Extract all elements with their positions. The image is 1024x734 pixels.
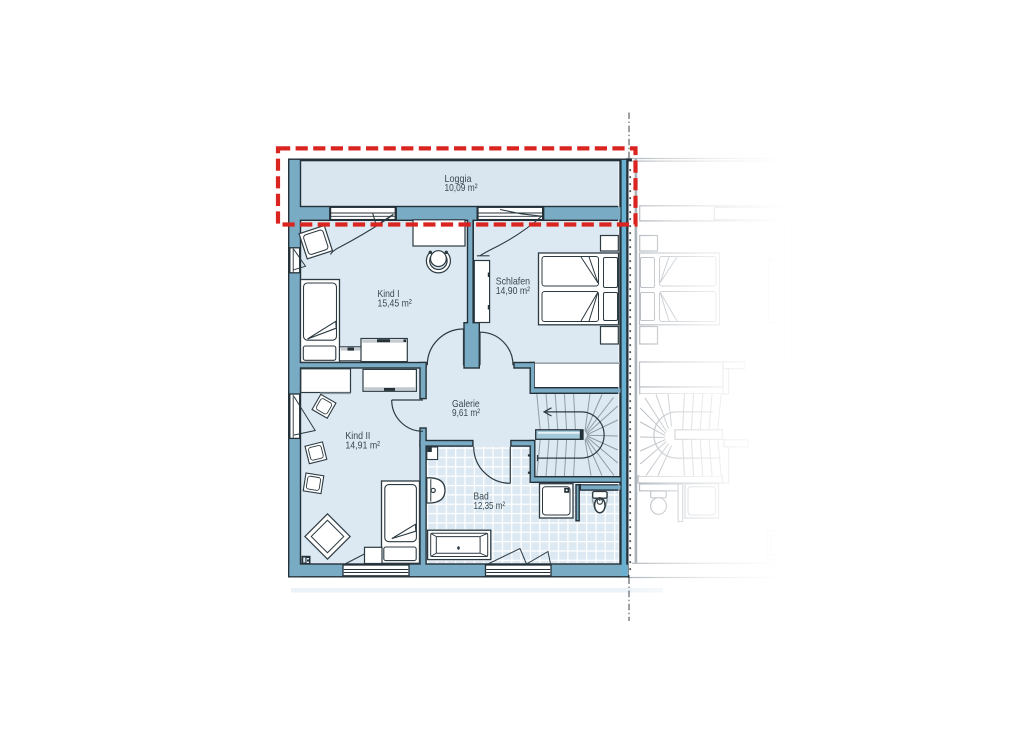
- svg-text:15,45 m²: 15,45 m²: [378, 298, 413, 310]
- svg-text:10,09 m²: 10,09 m²: [445, 182, 478, 194]
- svg-text:9,61 m²: 9,61 m²: [452, 407, 480, 419]
- svg-text:12,35 m²: 12,35 m²: [474, 500, 506, 512]
- svg-text:14,90 m²: 14,90 m²: [496, 285, 531, 297]
- svg-text:14,91 m²: 14,91 m²: [345, 440, 380, 452]
